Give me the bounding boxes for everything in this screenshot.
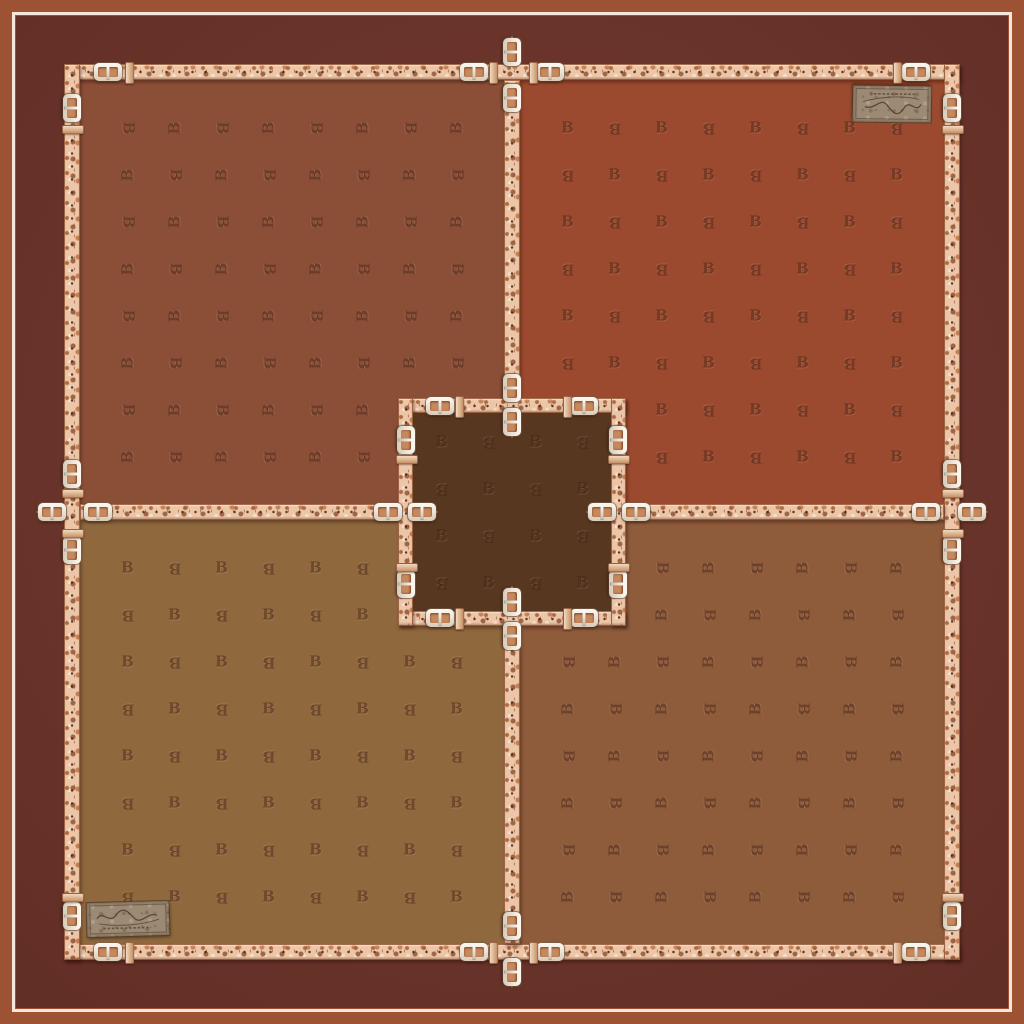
monogram-b-motif: B — [890, 308, 903, 323]
monogram-b-motif: B — [702, 355, 715, 370]
monogram-b-motif: B — [309, 795, 322, 810]
monogram-b-motif: B — [529, 528, 542, 543]
monogram-b-motif: B — [890, 402, 903, 417]
belt-buckle-icon — [503, 38, 521, 66]
belt-buckle-icon — [426, 609, 454, 627]
belt-keeper — [489, 942, 498, 964]
monogram-b-motif: B — [701, 796, 716, 809]
monogram-b-motif: B — [843, 402, 856, 417]
monogram-b-motif: B — [215, 795, 228, 810]
monogram-b-motif: B — [262, 607, 275, 622]
monogram-b-motif: B — [355, 168, 370, 181]
monogram-b-motif: B — [356, 795, 369, 810]
monogram-b-motif: B — [560, 843, 575, 856]
monogram-b-motif: B — [890, 167, 903, 182]
belt-buckle-icon — [374, 503, 402, 521]
signature-stamp-icon — [853, 85, 931, 122]
monogram-b-motif: B — [748, 843, 763, 856]
monogram-b-motif: B — [308, 121, 323, 134]
monogram-b-motif: B — [842, 890, 857, 903]
monogram-b-motif: B — [356, 748, 369, 763]
monogram-b-motif: B — [435, 575, 448, 590]
monogram-b-motif: B — [308, 262, 323, 275]
monogram-b-motif: B — [796, 355, 809, 370]
monogram-b-motif: B — [654, 702, 669, 715]
monogram-b-motif: B — [702, 402, 715, 417]
monogram-b-motif: B — [402, 262, 417, 275]
belt-strap-v — [64, 64, 80, 960]
monogram-b-motif: B — [309, 889, 322, 904]
monogram-b-motif: B — [702, 449, 715, 464]
monogram-b-motif: B — [529, 481, 542, 496]
monogram-b-motif: B — [356, 889, 369, 904]
belt-buckle-icon — [426, 397, 454, 415]
belt-buckle-icon — [63, 902, 81, 930]
monogram-b-motif: B — [356, 701, 369, 716]
belt-buckle-icon — [943, 902, 961, 930]
belt-buckle-icon — [503, 622, 521, 650]
monogram-b-motif: B — [120, 450, 135, 463]
monogram-b-motif: B — [261, 121, 276, 134]
monogram-b-motif: B — [435, 434, 448, 449]
monogram-b-motif: B — [355, 450, 370, 463]
monogram-b-motif: B — [121, 607, 134, 622]
monogram-b-motif: B — [356, 654, 369, 669]
monogram-b-motif: B — [450, 842, 463, 857]
monogram-b-motif: B — [168, 842, 181, 857]
monogram-b-motif: B — [655, 355, 668, 370]
monogram-b-motif: B — [576, 481, 589, 496]
monogram-b-motif: B — [449, 356, 464, 369]
monogram-b-motif: B — [749, 449, 762, 464]
monogram-b-motif: B — [121, 842, 134, 857]
monogram-b-motif: B — [403, 748, 416, 763]
monogram-b-motif: B — [890, 355, 903, 370]
belt-strap-h — [64, 64, 960, 80]
monogram-b-motif: B — [889, 561, 904, 574]
belt-buckle-icon — [902, 943, 930, 961]
monogram-b-motif: B — [655, 261, 668, 276]
monogram-b-motif: B — [120, 215, 135, 228]
monogram-b-motif: B — [608, 214, 621, 229]
monogram-b-motif: B — [890, 214, 903, 229]
monogram-b-motif: B — [701, 749, 716, 762]
monogram-b-motif: B — [355, 356, 370, 369]
signature-stamp-icon — [87, 901, 170, 937]
scarf-panel: BBBBBBBBBBBBBBBBBBBBBBBBBBBBBBBBBBBBBBBB… — [64, 64, 960, 960]
belt-buckle-icon — [943, 536, 961, 564]
belt-strap-h — [626, 504, 944, 520]
monogram-b-motif: B — [215, 842, 228, 857]
monogram-b-motif: B — [843, 120, 856, 135]
monogram-b-motif: B — [402, 309, 417, 322]
monogram-b-motif: B — [403, 889, 416, 904]
monogram-b-motif: B — [403, 654, 416, 669]
monogram-b-motif: B — [795, 749, 810, 762]
monogram-b-motif: B — [748, 702, 763, 715]
monogram-b-motif: B — [701, 843, 716, 856]
belt-keeper — [62, 489, 84, 498]
monogram-b-motif: B — [654, 749, 669, 762]
monogram-b-motif: B — [261, 309, 276, 322]
monogram-b-motif: B — [214, 356, 229, 369]
monogram-b-motif: B — [702, 308, 715, 323]
monogram-b-motif: B — [796, 261, 809, 276]
belt-keeper — [455, 608, 464, 630]
belt-buckle-icon — [408, 503, 436, 521]
monogram-b-motif: B — [748, 749, 763, 762]
belt-buckle-icon — [397, 570, 415, 598]
monogram-b-motif: B — [120, 309, 135, 322]
monogram-b-motif: B — [655, 402, 668, 417]
monogram-b-motif: B — [889, 843, 904, 856]
monogram-b-motif: B — [702, 120, 715, 135]
monogram-b-motif: B — [309, 560, 322, 575]
monogram-b-motif: B — [261, 168, 276, 181]
monogram-b-motif: B — [121, 748, 134, 763]
monogram-b-motif: B — [215, 701, 228, 716]
belt-buckle-icon — [38, 503, 66, 521]
belt-keeper — [942, 489, 964, 498]
monogram-b-motif: B — [403, 795, 416, 810]
monogram-b-motif: B — [308, 403, 323, 416]
monogram-b-motif: B — [435, 481, 448, 496]
monogram-b-motif: B — [749, 355, 762, 370]
monogram-b-motif: B — [167, 262, 182, 275]
monogram-b-motif: B — [608, 355, 621, 370]
monogram-b-motif: B — [702, 261, 715, 276]
monogram-b-motif: B — [561, 308, 574, 323]
monogram-b-motif: B — [607, 843, 622, 856]
monogram-b-motif: B — [168, 654, 181, 669]
monogram-b-motif: B — [843, 355, 856, 370]
monogram-b-motif: B — [608, 261, 621, 276]
monogram-b-motif: B — [890, 261, 903, 276]
monogram-b-motif: B — [842, 749, 857, 762]
monogram-b-motif: B — [654, 561, 669, 574]
monogram-b-motif: B — [529, 575, 542, 590]
monogram-b-motif: B — [796, 449, 809, 464]
monogram-b-motif: B — [561, 355, 574, 370]
belt-buckle-icon — [94, 63, 122, 81]
belt-strap-v — [504, 80, 520, 398]
monogram-b-motif: B — [403, 842, 416, 857]
monogram-b-motif: B — [795, 702, 810, 715]
belt-keeper — [62, 529, 84, 538]
monogram-b-motif: B — [654, 608, 669, 621]
monogram-b-motif: B — [402, 168, 417, 181]
monogram-b-motif: B — [214, 121, 229, 134]
belt-strap-h — [80, 504, 398, 520]
belt-keeper — [125, 942, 134, 964]
monogram-b-motif: B — [449, 262, 464, 275]
monogram-b-motif: B — [214, 403, 229, 416]
belt-keeper — [396, 563, 418, 572]
leather-signature-patch-bottom-left — [87, 901, 170, 937]
belt-buckle-icon — [94, 943, 122, 961]
monogram-b-motif: B — [356, 607, 369, 622]
monogram-b-motif: B — [214, 215, 229, 228]
belt-buckle-icon — [84, 503, 112, 521]
belt-buckle-icon — [902, 63, 930, 81]
monogram-b-motif: B — [120, 403, 135, 416]
belt-keeper — [942, 529, 964, 538]
monogram-b-motif: B — [308, 215, 323, 228]
monogram-b-motif: B — [355, 262, 370, 275]
monogram-b-motif: B — [843, 214, 856, 229]
monogram-b-motif: B — [654, 655, 669, 668]
belt-buckle-icon — [609, 570, 627, 598]
belt-buckle-icon — [460, 63, 488, 81]
monogram-b-motif: B — [702, 214, 715, 229]
belt-buckle-icon — [397, 426, 415, 454]
monogram-b-motif: B — [215, 654, 228, 669]
monogram-b-motif: B — [607, 655, 622, 668]
monogram-b-motif: B — [607, 890, 622, 903]
belt-keeper — [563, 396, 572, 418]
belt-buckle-icon — [958, 503, 986, 521]
monogram-b-motif: B — [654, 890, 669, 903]
monogram-b-motif: B — [402, 215, 417, 228]
monogram-b-motif: B — [356, 842, 369, 857]
monogram-b-motif: B — [309, 842, 322, 857]
monogram-b-motif: B — [402, 121, 417, 134]
monogram-b-motif: B — [889, 890, 904, 903]
monogram-b-motif: B — [167, 450, 182, 463]
monogram-b-motif: B — [120, 121, 135, 134]
belt-buckle-icon — [503, 912, 521, 940]
leather-signature-patch-top-right — [853, 85, 931, 122]
monogram-b-motif: B — [309, 748, 322, 763]
monogram-b-motif: B — [842, 561, 857, 574]
monogram-b-motif: B — [482, 575, 495, 590]
monogram-b-motif: B — [214, 309, 229, 322]
monogram-b-motif: B — [655, 214, 668, 229]
monogram-b-motif: B — [561, 167, 574, 182]
monogram-b-motif: B — [168, 795, 181, 810]
monogram-b-motif: B — [795, 796, 810, 809]
monogram-b-motif: B — [214, 168, 229, 181]
monogram-b-motif: B — [262, 748, 275, 763]
monogram-b-motif: B — [748, 561, 763, 574]
monogram-b-motif: B — [121, 701, 134, 716]
monogram-b-motif: B — [308, 309, 323, 322]
monogram-b-motif: B — [842, 655, 857, 668]
monogram-b-motif: B — [796, 120, 809, 135]
monogram-b-motif: B — [450, 654, 463, 669]
belt-buckle-icon — [503, 588, 521, 616]
monogram-b-motif: B — [796, 214, 809, 229]
belt-buckle-icon — [63, 94, 81, 122]
monogram-b-motif: B — [450, 795, 463, 810]
monogram-b-motif: B — [889, 702, 904, 715]
monogram-b-motif: B — [843, 167, 856, 182]
monogram-b-motif: B — [262, 654, 275, 669]
monogram-b-motif: B — [262, 560, 275, 575]
monogram-b-motif: B — [560, 796, 575, 809]
monogram-b-motif: B — [355, 215, 370, 228]
monogram-b-motif: B — [748, 655, 763, 668]
belt-keeper — [942, 893, 964, 902]
monogram-b-motif: B — [262, 842, 275, 857]
monogram-b-motif: B — [168, 560, 181, 575]
monogram-b-motif: B — [308, 450, 323, 463]
belt-buckle-icon — [63, 460, 81, 488]
belt-buckle-icon — [943, 460, 961, 488]
belt-keeper — [396, 455, 418, 464]
monogram-b-motif: B — [608, 120, 621, 135]
monogram-b-motif: B — [167, 168, 182, 181]
monogram-b-motif: B — [843, 449, 856, 464]
belt-buckle-icon — [503, 374, 521, 402]
monogram-b-motif: B — [356, 560, 369, 575]
belt-buckle-icon — [63, 536, 81, 564]
monogram-b-motif: B — [529, 434, 542, 449]
monogram-b-motif: B — [748, 608, 763, 621]
belt-buckle-icon — [588, 503, 616, 521]
monogram-b-motif: B — [482, 481, 495, 496]
monogram-b-motif: B — [607, 749, 622, 762]
monogram-b-motif: B — [795, 843, 810, 856]
monogram-b-motif: B — [607, 702, 622, 715]
monogram-b-motif: B — [889, 749, 904, 762]
belt-buckle-icon — [503, 958, 521, 986]
monogram-b-motif: B — [795, 890, 810, 903]
monogram-b-motif: B — [214, 262, 229, 275]
monogram-b-motif: B — [890, 120, 903, 135]
monogram-b-motif: B — [355, 403, 370, 416]
monogram-b-motif: B — [701, 702, 716, 715]
monogram-b-motif: B — [168, 748, 181, 763]
monogram-b-motif: B — [168, 607, 181, 622]
belt-buckle-icon — [912, 503, 940, 521]
monogram-b-motif: B — [796, 167, 809, 182]
monogram-b-motif: B — [607, 796, 622, 809]
monogram-b-motif: B — [889, 608, 904, 621]
monogram-b-motif: B — [655, 308, 668, 323]
monogram-b-motif: B — [167, 309, 182, 322]
monogram-b-motif: B — [796, 308, 809, 323]
monogram-b-motif: B — [167, 215, 182, 228]
monogram-b-motif: B — [576, 528, 589, 543]
belt-keeper — [608, 563, 630, 572]
monogram-b-motif: B — [261, 262, 276, 275]
belt-keeper — [893, 942, 902, 964]
monogram-b-motif: B — [215, 889, 228, 904]
monogram-b-motif: B — [482, 434, 495, 449]
monogram-b-motif: B — [167, 403, 182, 416]
monogram-b-motif: B — [608, 167, 621, 182]
monogram-b-motif: B — [449, 215, 464, 228]
monogram-b-motif: B — [121, 795, 134, 810]
monogram-b-motif: B — [842, 796, 857, 809]
monogram-b-motif: B — [889, 796, 904, 809]
belt-keeper — [489, 62, 498, 84]
monogram-b-motif: B — [654, 843, 669, 856]
monogram-b-motif: B — [795, 655, 810, 668]
monogram-b-motif: B — [262, 795, 275, 810]
monogram-b-motif: B — [843, 308, 856, 323]
monogram-b-motif: B — [561, 120, 574, 135]
monogram-b-motif: B — [167, 121, 182, 134]
monogram-b-motif: B — [842, 608, 857, 621]
monogram-b-motif: B — [261, 403, 276, 416]
monogram-b-motif: B — [449, 121, 464, 134]
monogram-b-motif: B — [560, 702, 575, 715]
monogram-b-motif: B — [403, 701, 416, 716]
monogram-b-motif: B — [309, 607, 322, 622]
monogram-b-motif: B — [449, 309, 464, 322]
monogram-b-motif: B — [215, 748, 228, 763]
belt-keeper — [455, 396, 464, 418]
belt-keeper — [893, 62, 902, 84]
monogram-b-motif: B — [215, 560, 228, 575]
belt-strap-v — [504, 626, 520, 944]
monogram-b-motif: B — [701, 890, 716, 903]
belt-keeper — [62, 125, 84, 134]
monogram-b-motif: B — [796, 402, 809, 417]
monogram-b-motif: B — [748, 890, 763, 903]
monogram-b-motif: B — [168, 889, 181, 904]
belt-keeper — [529, 62, 538, 84]
monogram-b-motif: B — [701, 561, 716, 574]
belt-buckle-icon — [622, 503, 650, 521]
belt-buckle-icon — [609, 426, 627, 454]
monogram-b-motif: B — [749, 402, 762, 417]
monogram-b-motif: B — [450, 701, 463, 716]
belt-buckle-icon — [536, 63, 564, 81]
monogram-b-motif: B — [842, 702, 857, 715]
monogram-b-motif: B — [749, 261, 762, 276]
monogram-b-motif: B — [308, 356, 323, 369]
monogram-b-motif: B — [701, 655, 716, 668]
monogram-b-motif: B — [561, 214, 574, 229]
belt-keeper — [608, 455, 630, 464]
monogram-b-motif: B — [214, 450, 229, 463]
monogram-b-motif: B — [262, 889, 275, 904]
monogram-b-motif: B — [608, 308, 621, 323]
monogram-b-motif: B — [168, 701, 181, 716]
monogram-b-motif: B — [842, 843, 857, 856]
monogram-b-motif: B — [261, 450, 276, 463]
monogram-b-motif: B — [402, 356, 417, 369]
monogram-b-motif: B — [450, 748, 463, 763]
belt-buckle-icon — [943, 94, 961, 122]
monogram-b-motif: B — [749, 308, 762, 323]
monogram-b-motif: B — [843, 261, 856, 276]
monogram-b-motif: B — [702, 167, 715, 182]
monogram-b-motif: B — [262, 701, 275, 716]
belt-buckle-icon — [570, 397, 598, 415]
scarf-design-image: BBBBBBBBBBBBBBBBBBBBBBBBBBBBBBBBBBBBBBBB… — [0, 0, 1024, 1024]
monogram-b-motif: B — [121, 654, 134, 669]
monogram-b-motif: B — [120, 356, 135, 369]
monogram-b-motif: B — [560, 655, 575, 668]
monogram-b-motif: B — [655, 120, 668, 135]
monogram-b-motif: B — [749, 167, 762, 182]
monogram-b-motif: B — [450, 889, 463, 904]
monogram-b-motif: B — [749, 214, 762, 229]
belt-buckle-icon — [570, 609, 598, 627]
monogram-b-motif: B — [560, 749, 575, 762]
monogram-b-motif: B — [308, 168, 323, 181]
monogram-b-motif: B — [795, 561, 810, 574]
monogram-b-motif: B — [889, 655, 904, 668]
monogram-b-motif: B — [701, 608, 716, 621]
monogram-b-motif: B — [449, 168, 464, 181]
monogram-b-motif: B — [435, 528, 448, 543]
belt-keeper — [563, 608, 572, 630]
